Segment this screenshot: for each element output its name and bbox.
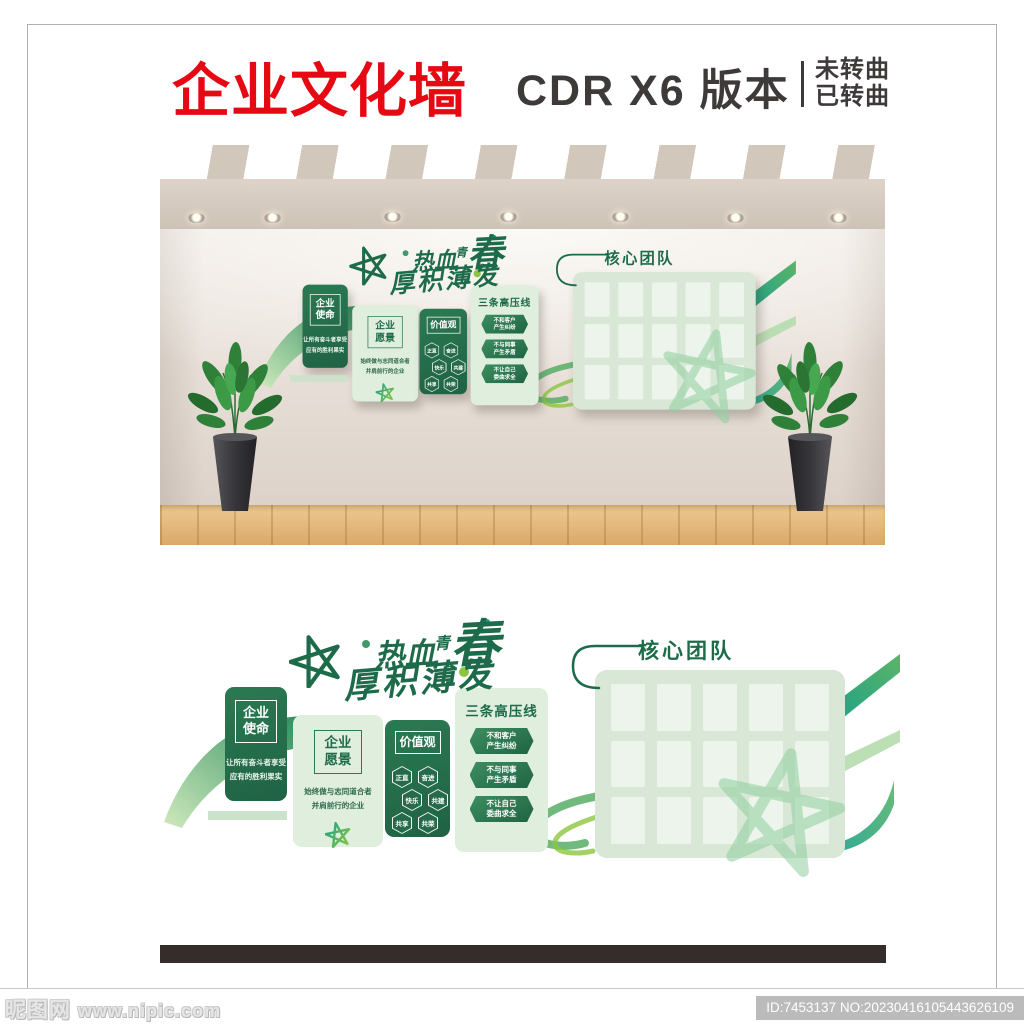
vision-title: 企业 愿景 <box>368 316 403 348</box>
vision-star-icon <box>325 821 351 848</box>
photo-placeholder <box>719 282 744 316</box>
value-hex: 奋进 <box>418 766 438 788</box>
photo-placeholder <box>703 684 737 731</box>
value-hex: 共建 <box>451 359 466 375</box>
mission-underbar <box>208 811 287 820</box>
poster-page: 企业文化墙 CDR X6 版本 未转曲 已转曲 <box>0 0 1024 1024</box>
mission-title: 企业 使命 <box>310 294 341 325</box>
watermark-star-icon <box>713 743 845 877</box>
value-hex: 快乐 <box>432 359 447 375</box>
team-title: 核心团队 <box>638 635 734 665</box>
photo-placeholder <box>611 797 645 844</box>
value-hex: 共享 <box>392 812 412 834</box>
redline-badge: 不与同事 产生矛盾 <box>481 339 528 358</box>
watermark-star-icon <box>659 326 755 424</box>
photo-placeholder <box>657 797 691 844</box>
photo-placeholder <box>618 324 643 358</box>
site-watermark: 昵图网 www.nipic.com <box>5 994 221 1024</box>
photo-placeholder <box>618 365 643 399</box>
redline-badge: 不和客户 产生纠纷 <box>481 315 528 334</box>
team-title: 核心团队 <box>604 247 674 269</box>
redlines-panel: 三条高压线 不和客户 产生纠纷 不与同事 产生矛盾 不让自己 委曲求全 <box>471 285 539 405</box>
vision-body: 始终做与志同道合者 并肩前行的企业 <box>293 785 383 814</box>
version-label: CDR X6 版本 <box>516 56 790 118</box>
value-hex: 共建 <box>428 789 448 811</box>
vision-body: 始终做与志同道合者 并肩前行的企业 <box>352 356 418 377</box>
values-title: 价值观 <box>395 731 441 754</box>
redline-badge: 不让自己 委曲求全 <box>470 796 534 822</box>
vision-star-icon <box>376 383 395 403</box>
photo-placeholder <box>795 684 829 731</box>
watermark-strip: 昵图网 www.nipic.com ID:7453137 NO:20230416… <box>0 988 1024 1024</box>
culture-wall-design: 热血青春 厚积薄发 企业 使命 让所有奋斗者享受 应有的胜利果实 企业 愿景 始… <box>160 600 900 890</box>
image-id-badge: ID:7453137 NO:20230416105443626109 <box>756 996 1024 1020</box>
team-title-bracket <box>551 249 608 293</box>
mission-panel: 企业 使命 让所有奋斗者享受 应有的胜利果实 <box>303 285 348 368</box>
redlines-title: 三条高压线 <box>455 700 548 720</box>
value-hex: 共荣 <box>444 376 459 392</box>
value-hex: 正直 <box>392 766 412 788</box>
vision-title: 企业 愿景 <box>314 730 362 774</box>
redlines-title: 三条高压线 <box>471 294 539 309</box>
value-hex: 正直 <box>425 342 440 358</box>
design-base-bar <box>160 945 886 963</box>
header-divider <box>801 61 804 107</box>
star-knot-logo-icon <box>289 632 343 688</box>
ceiling-skylights <box>160 145 885 179</box>
flat-design: 热血青春 厚积薄发 企业 使命 让所有奋斗者享受 应有的胜利果实 企业 愿景 始… <box>160 600 900 890</box>
photo-placeholder <box>657 741 691 788</box>
outline-note-line1: 未转曲 <box>815 57 890 84</box>
outline-note-line2: 已转曲 <box>815 84 890 111</box>
photo-placeholder <box>652 282 677 316</box>
redline-badge: 不让自己 委曲求全 <box>481 364 528 383</box>
site-watermark-url: www.nipic.com <box>78 1001 221 1021</box>
photo-placeholder <box>686 282 711 316</box>
mission-title: 企业 使命 <box>235 700 277 743</box>
value-hex: 快乐 <box>402 789 422 811</box>
photo-placeholder <box>618 282 643 316</box>
outline-note: 未转曲 已转曲 <box>815 57 890 111</box>
photo-placeholder <box>585 324 610 358</box>
value-hex: 共享 <box>425 376 440 392</box>
redline-badge: 不与同事 产生矛盾 <box>470 762 534 788</box>
photo-placeholder <box>657 684 691 731</box>
value-hex: 共荣 <box>418 812 438 834</box>
potted-plant-right <box>760 333 860 513</box>
mission-underbar <box>290 375 348 382</box>
values-panel: 价值观 正直 奋进 快乐 共建 共享 共荣 <box>419 309 467 395</box>
redlines-panel: 三条高压线 不和客户 产生纠纷 不与同事 产生矛盾 不让自己 委曲求全 <box>455 688 548 852</box>
photo-placeholder <box>611 741 645 788</box>
room-mockup: 热血青春 厚积薄发 企业 使命 让所有奋斗者享受 应有的胜利果实 企业 愿景 始… <box>160 145 885 545</box>
vision-panel: 企业 愿景 始终做与志同道合者 并肩前行的企业 <box>293 715 383 847</box>
mission-panel: 企业 使命 让所有奋斗者享受 应有的胜利果实 <box>225 687 287 801</box>
values-title: 价值观 <box>426 317 460 334</box>
photo-placeholder <box>749 684 783 731</box>
team-title-bracket <box>565 638 643 698</box>
deco-dot-green <box>403 250 409 256</box>
spotlight-icon <box>830 213 847 223</box>
photo-placeholder <box>585 365 610 399</box>
value-hex: 奋进 <box>444 342 459 358</box>
spotlight-icon <box>188 213 205 223</box>
culture-wall-design: 热血青春 厚积薄发 企业 使命 让所有奋斗者享受 应有的胜利果实 企业 愿景 始… <box>255 221 796 433</box>
redline-badge: 不和客户 产生纠纷 <box>470 728 534 754</box>
mission-body: 让所有奋斗者享受 应有的胜利果实 <box>303 335 348 356</box>
page-title: 企业文化墙 <box>172 44 467 128</box>
vision-panel: 企业 愿景 始终做与志同道合者 并肩前行的企业 <box>352 305 418 401</box>
mission-body: 让所有奋斗者享受 应有的胜利果实 <box>225 756 287 785</box>
star-knot-logo-icon <box>349 244 388 285</box>
values-panel: 价值观 正直 奋进 快乐 共建 共享 共荣 <box>385 720 450 837</box>
potted-plant-left <box>185 333 285 513</box>
wall-mounted-design: 热血青春 厚积薄发 企业 使命 让所有奋斗者享受 应有的胜利果实 企业 愿景 始… <box>255 221 796 433</box>
deco-dot-green <box>362 640 370 648</box>
site-watermark-logo: 昵图网 <box>5 999 71 1022</box>
